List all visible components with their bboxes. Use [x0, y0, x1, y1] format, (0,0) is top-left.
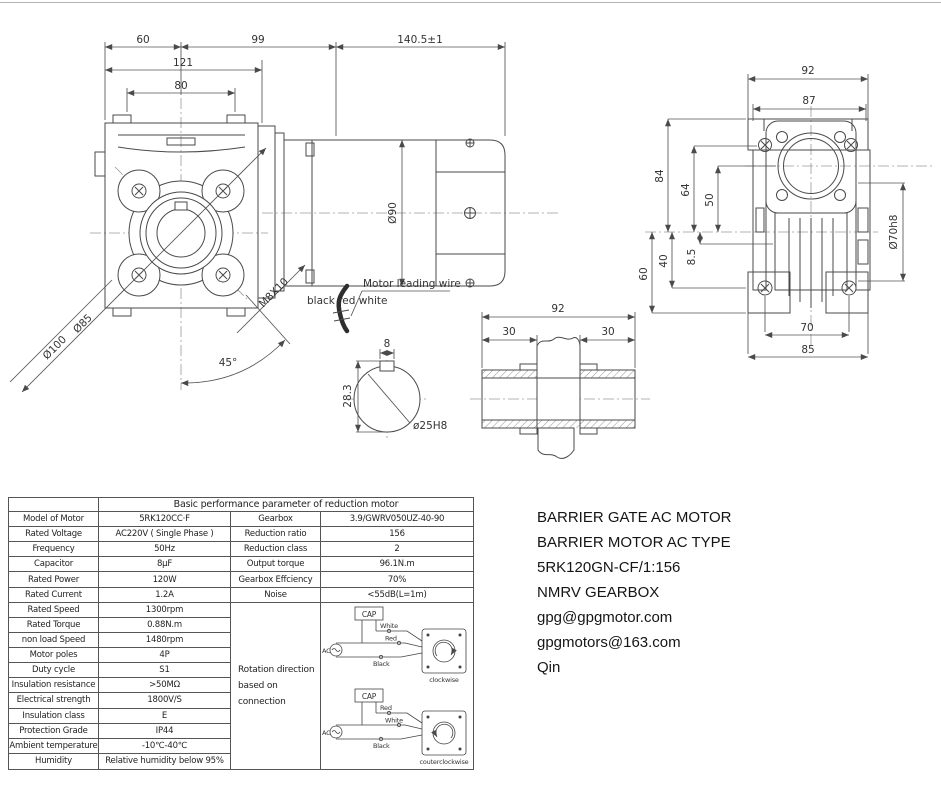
spec-row-label: Motor poles [9, 648, 99, 663]
foot-holes [758, 281, 856, 295]
ac-source-icon [332, 648, 340, 651]
dim-label-87: 87 [802, 95, 815, 107]
wire-label-mid: White [385, 716, 403, 724]
rotation-caption-cw: clockwise [429, 676, 459, 684]
info-line-email1: gpg@gpgmotor.com [537, 605, 731, 630]
clockwise-arrow-icon [435, 642, 452, 656]
info-line-contact: Qin [537, 655, 731, 680]
hollow-shaft-section [482, 337, 635, 458]
spec-row-label: Rated Voltage [9, 527, 99, 542]
dim-label-99: 99 [251, 34, 264, 46]
spec-row-value: S1 [99, 663, 231, 678]
dim-label-70: 70 [800, 322, 813, 334]
spec-row-value: 96.1N.m [321, 557, 473, 572]
dim-label-d25h8: ø25H8 [413, 420, 447, 432]
dim-label-40: 40 [658, 254, 670, 267]
spec-row-value: 2 [321, 542, 473, 557]
rotation-note-line1: Rotation direction [238, 662, 314, 678]
cover-screws [464, 139, 476, 287]
spec-row-label: Electrical strength [9, 693, 99, 708]
spec-row-label: Output torque [231, 557, 321, 572]
dim-label-8: 8 [384, 338, 391, 350]
counterclockwise-arrow-icon [436, 724, 453, 738]
dim-label-64: 64 [680, 183, 692, 197]
front-view-drawing: 92 87 84 64 50 40 8.5 60 Ø70h8 70 85 [638, 65, 933, 357]
dim-label-140-5: 140.5±1 [397, 34, 443, 46]
spec-row-label: Noise [231, 588, 321, 603]
spec-row-value: E [99, 709, 231, 724]
wiring-counterclockwise: CAP AC Red White Black couterclockwise [322, 689, 469, 766]
spec-row-value: 1300rpm [99, 603, 231, 618]
dim-label-45deg: 45° [219, 357, 238, 369]
spec-row-label: Duty cycle [9, 663, 99, 678]
wiring-clockwise: CAP AC White Red Black clockwise [322, 607, 466, 684]
spec-row-value: AC220V ( Single Phase ) [99, 527, 231, 542]
spec-row-label: Gearbox [231, 512, 321, 527]
spec-row-value: 0.88N.m [99, 618, 231, 633]
spec-row-value: 1480rpm [99, 633, 231, 648]
dim-label-84: 84 [654, 169, 666, 183]
spec-row-label: Protection Grade [9, 724, 99, 739]
spec-row-label: Frequency [9, 542, 99, 557]
spec-row-label: Rated Current [9, 588, 99, 603]
rotation-direction-note: Rotation direction based on connection [231, 603, 321, 769]
spec-row-label: Model of Motor [9, 512, 99, 527]
dim-label-92-shaft: 92 [551, 303, 564, 315]
dim-label-d85: Ø85 [71, 312, 95, 336]
spec-row-label: Insulation resistance [9, 678, 99, 693]
spec-row-value: 120W [99, 572, 231, 587]
info-line-model: 5RK120GN-CF/1:156 [537, 555, 731, 580]
shaft-section-drawing: 8 28.3 ø25H8 [342, 303, 650, 458]
spec-row-value: IP44 [99, 724, 231, 739]
wire-note-line2: black red white [307, 295, 388, 307]
wiring-diagram: CAP AC White Red Black clockwise [321, 603, 473, 769]
spec-row-label: Humidity [9, 754, 99, 769]
dim-label-121: 121 [173, 57, 193, 69]
motor-body [258, 126, 436, 298]
keyed-bore-section [354, 361, 420, 432]
side-view-drawing: 60 99 140.5±1 121 80 Ø90 Ø85 Ø100 45° M8… [10, 34, 558, 392]
dim-label-30-left: 30 [502, 326, 515, 338]
info-line-gearbox: NMRV GEARBOX [537, 580, 731, 605]
engineering-drawing: 60 99 140.5±1 121 80 Ø90 Ø85 Ø100 45° M8… [0, 0, 941, 495]
product-info-block: BARRIER GATE AC MOTOR BARRIER MOTOR AC T… [537, 505, 731, 680]
spec-row-value: 8μF [99, 557, 231, 572]
wire-label-top: Red [380, 704, 392, 712]
dim-label-d90: Ø90 [387, 202, 399, 224]
spec-row-value: -10℃-40℃ [99, 739, 231, 754]
wire-label-bot: Black [373, 742, 390, 750]
spec-row-value: 156 [321, 527, 473, 542]
dim-label-30-right: 30 [601, 326, 614, 338]
motor-wire [339, 286, 347, 331]
dim-label-28-3: 28.3 [342, 384, 354, 407]
wire-label-top: White [380, 622, 398, 630]
cap-label: CAP [362, 610, 377, 619]
cap-label: CAP [362, 692, 377, 701]
wire-note-line1: Motor leading wire [363, 278, 461, 290]
spec-row-value: <55dB(L=1m) [321, 588, 473, 603]
spec-row-label: Reduction class [231, 542, 321, 557]
spec-row-label: Rated Power [9, 572, 99, 587]
spec-row-value: 3.9/GWRV050UZ-40-90 [321, 512, 473, 527]
ac-source-icon [332, 730, 340, 733]
spec-row-label: Rated Speed [9, 603, 99, 618]
dim-label-60: 60 [136, 34, 149, 46]
dim-label-d100: Ø100 [41, 334, 70, 363]
dim-label-d70h8: Ø70h8 [888, 215, 900, 250]
spec-row-label: Capacitor [9, 557, 99, 572]
spec-row-value: 4P [99, 648, 231, 663]
spec-row-label: Gearbox Effciency [231, 572, 321, 587]
spec-row-label: Reduction ratio [231, 527, 321, 542]
rotation-caption-ccw: couterclockwise [420, 758, 469, 766]
wiring-diagram-cell: CAP AC White Red Black clockwise [321, 603, 473, 769]
wire-label-mid: Red [385, 634, 397, 642]
dim-label-85: 85 [801, 344, 814, 356]
dim-label-60-front: 60 [638, 267, 650, 280]
spec-row-value: 1800V/S [99, 693, 231, 708]
dim-label-92-front: 92 [801, 65, 814, 77]
table-title: Basic performance parameter of reduction… [99, 498, 473, 512]
spec-row-label: non load Speed [9, 633, 99, 648]
wire-label-bot: Black [373, 660, 390, 668]
table-title-spacer [9, 498, 99, 512]
gearbox-face [748, 119, 870, 313]
spec-row-label: Insulation class [9, 709, 99, 724]
spec-row-value: 70% [321, 572, 473, 587]
spec-row-label: Ambient temperature [9, 739, 99, 754]
spec-row-value: 50Hz [99, 542, 231, 557]
info-line-email2: gpgmotors@163.com [537, 630, 731, 655]
spec-table: Basic performance parameter of reduction… [8, 497, 474, 770]
ac-label: AC [322, 647, 331, 655]
spec-row-value: 1.2A [99, 588, 231, 603]
spec-row-label: Rated Torque [9, 618, 99, 633]
dim-label-50: 50 [704, 193, 716, 206]
datasheet-page: 60 99 140.5±1 121 80 Ø90 Ø85 Ø100 45° M8… [0, 0, 941, 800]
info-line-title2: BARRIER MOTOR AC TYPE [537, 530, 731, 555]
thread-label-m8x10: M8X10 [257, 276, 291, 310]
info-line-title1: BARRIER GATE AC MOTOR [537, 505, 731, 530]
rotation-note-line2: based on connection [238, 678, 320, 710]
ac-label: AC [322, 729, 331, 737]
dim-label-8-5: 8.5 [686, 249, 698, 266]
spec-row-value: >50MΩ [99, 678, 231, 693]
spec-row-value: Relative humidity below 95% [99, 754, 231, 769]
dim-label-80: 80 [174, 80, 187, 92]
spec-row-value: 5RK120CC·F [99, 512, 231, 527]
